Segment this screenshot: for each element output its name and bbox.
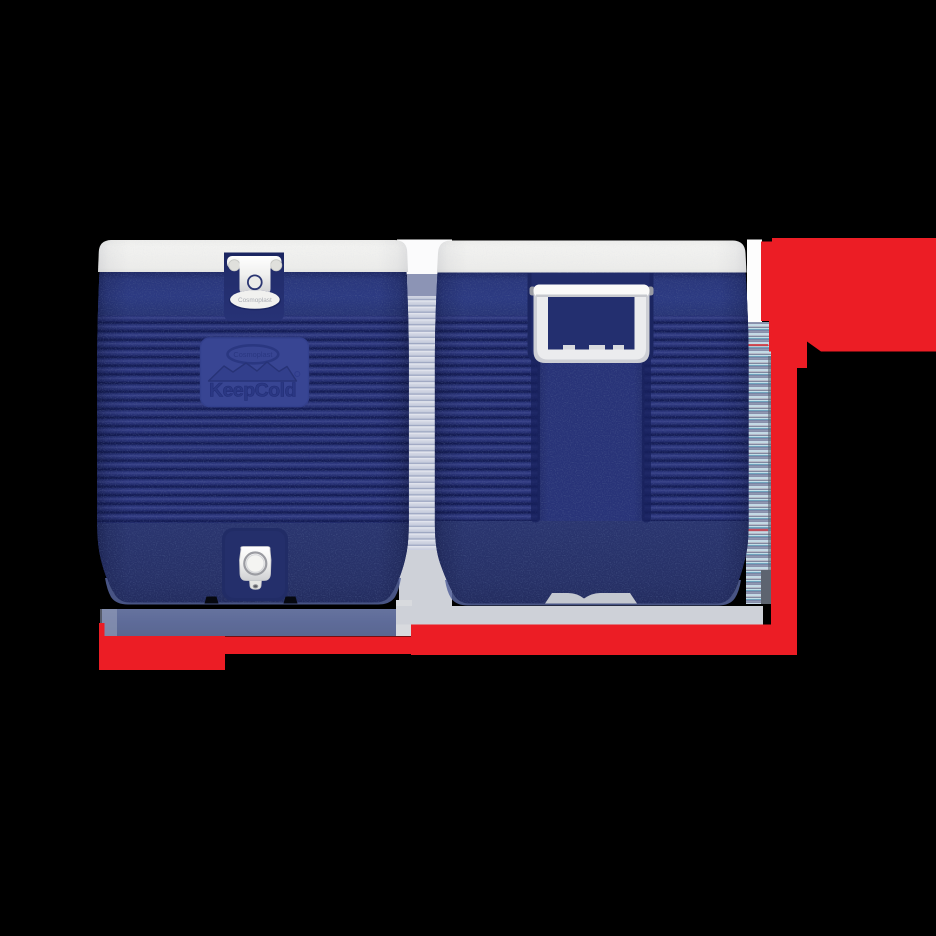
svg-text:Cosmoplast: Cosmoplast — [238, 297, 272, 304]
svg-text:KeepCold: KeepCold — [209, 380, 296, 402]
svg-text:Cosmoplast: Cosmoplast — [233, 350, 272, 359]
